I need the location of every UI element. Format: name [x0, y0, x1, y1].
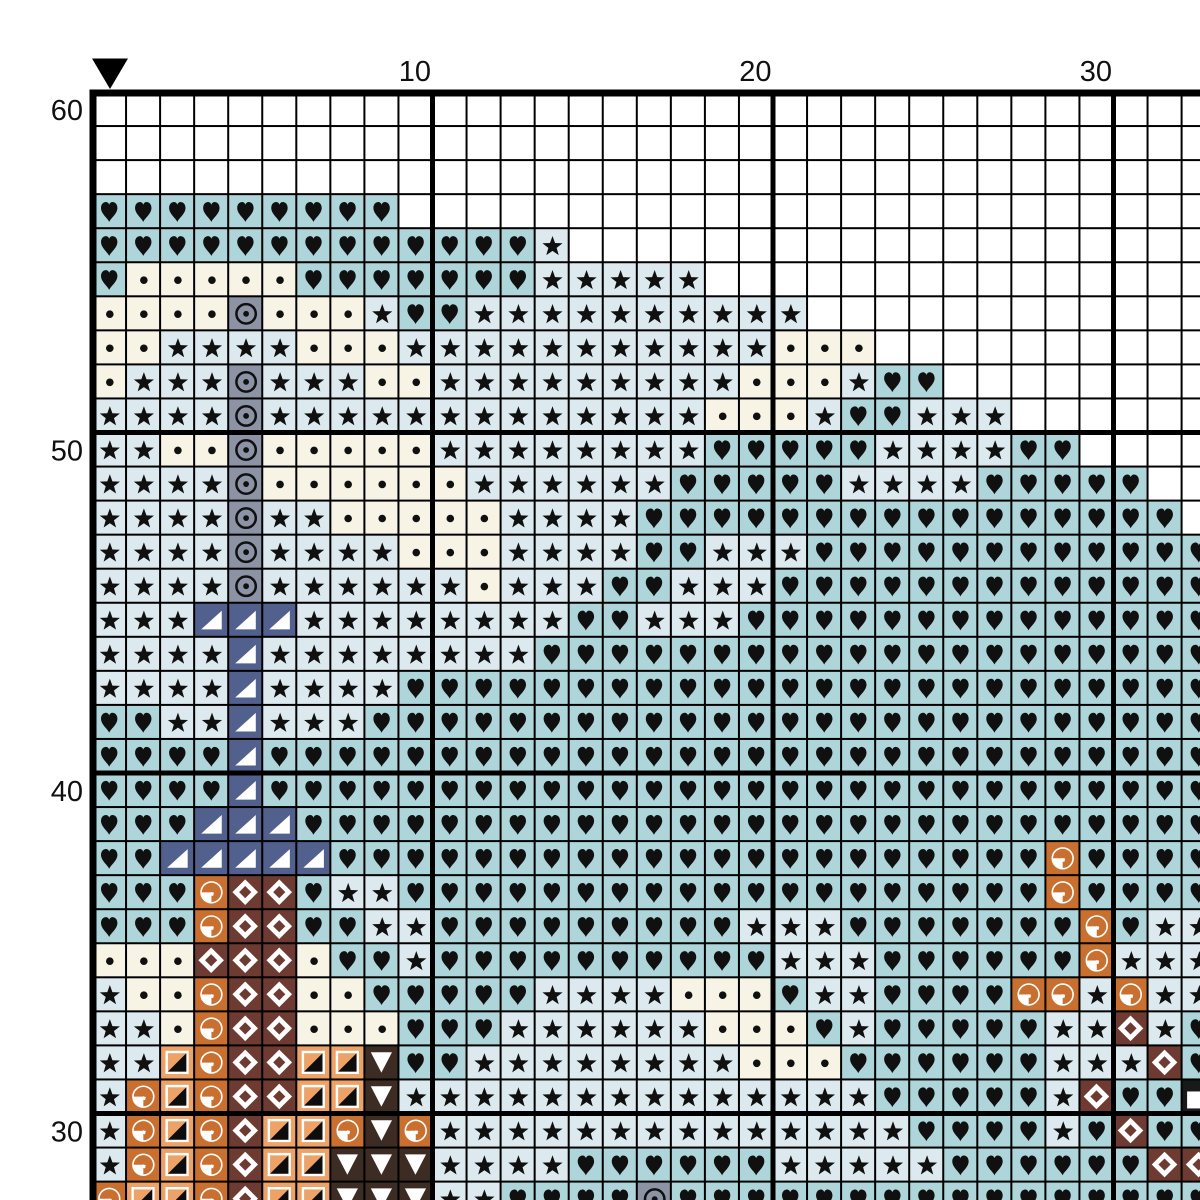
svg-text:50: 50: [51, 435, 83, 467]
svg-text:40: 40: [51, 776, 83, 808]
svg-text:30: 30: [51, 1116, 83, 1148]
svg-text:30: 30: [1080, 56, 1112, 88]
svg-text:60: 60: [51, 95, 83, 127]
svg-text:20: 20: [739, 56, 771, 88]
svg-text:10: 10: [399, 56, 431, 88]
